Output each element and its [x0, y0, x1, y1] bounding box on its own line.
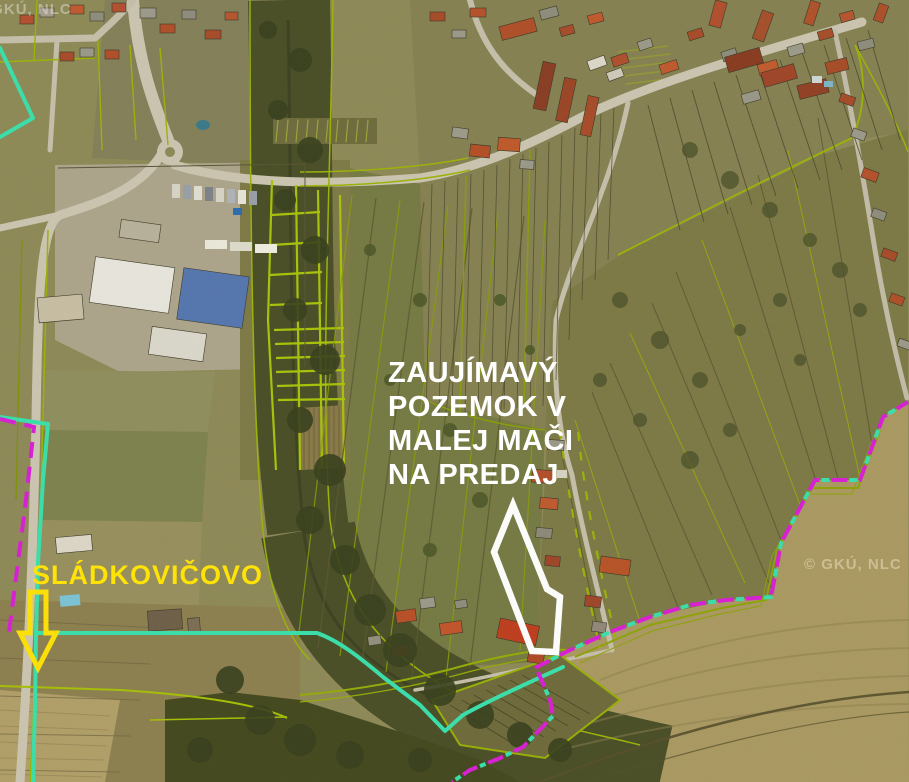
photo-grain: [0, 0, 909, 782]
map-viewport: © GKÚ, NLC ZAUJÍMAVÝ POZEMOK V MALEJ MAČ…: [0, 0, 909, 782]
aerial-map: [0, 0, 909, 782]
